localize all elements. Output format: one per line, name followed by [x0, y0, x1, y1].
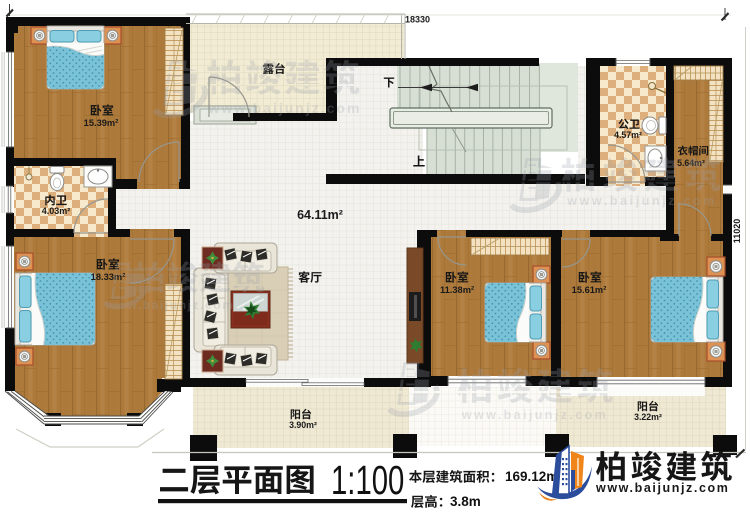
svg-text:www.baijunjz.com: www.baijunjz.com: [104, 298, 234, 312]
svg-text:www.baijunjz.com: www.baijunjz.com: [595, 481, 729, 495]
svg-text:1:100: 1:100: [331, 457, 404, 503]
svg-text:11020: 11020: [732, 219, 742, 244]
svg-text:www.baijunjz.com: www.baijunjz.com: [566, 194, 716, 208]
svg-text:3.8m: 3.8m: [450, 494, 481, 509]
svg-text:4.03m²: 4.03m²: [42, 206, 71, 216]
svg-text:18.33m²: 18.33m²: [91, 272, 126, 282]
svg-text:www.baijunjz.com: www.baijunjz.com: [208, 100, 362, 116]
svg-text:4.57m²: 4.57m²: [614, 130, 642, 140]
svg-text:15.61m²: 15.61m²: [572, 285, 607, 295]
svg-text:18330: 18330: [405, 15, 430, 25]
svg-text:11.38m²: 11.38m²: [440, 285, 474, 295]
svg-text:3.90m²: 3.90m²: [289, 420, 317, 430]
svg-text:3.22m²: 3.22m²: [634, 412, 662, 422]
svg-text:64.11m²: 64.11m²: [297, 208, 343, 222]
svg-text:www.baijunjz.com: www.baijunjz.com: [461, 408, 608, 422]
svg-text:15.39m²: 15.39m²: [84, 118, 119, 128]
